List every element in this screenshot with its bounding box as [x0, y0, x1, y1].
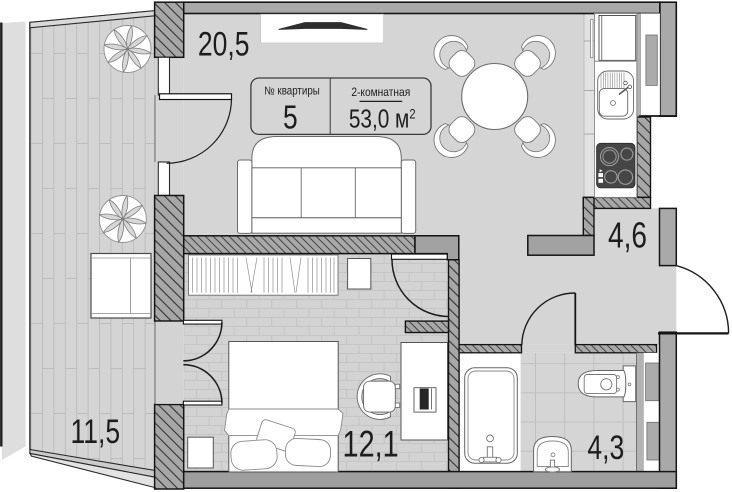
svg-text:20,5: 20,5 — [198, 25, 250, 63]
svg-text:5: 5 — [283, 100, 298, 136]
svg-text:53,0 м2: 53,0 м2 — [349, 104, 416, 133]
svg-text:11,5: 11,5 — [70, 413, 120, 451]
svg-text:4,6: 4,6 — [608, 215, 647, 255]
svg-text:4,3: 4,3 — [587, 429, 624, 467]
svg-text:12,1: 12,1 — [343, 424, 399, 465]
svg-text:2-комнатная: 2-комнатная — [351, 86, 410, 99]
svg-text:№ квартиры: № квартиры — [264, 85, 320, 98]
